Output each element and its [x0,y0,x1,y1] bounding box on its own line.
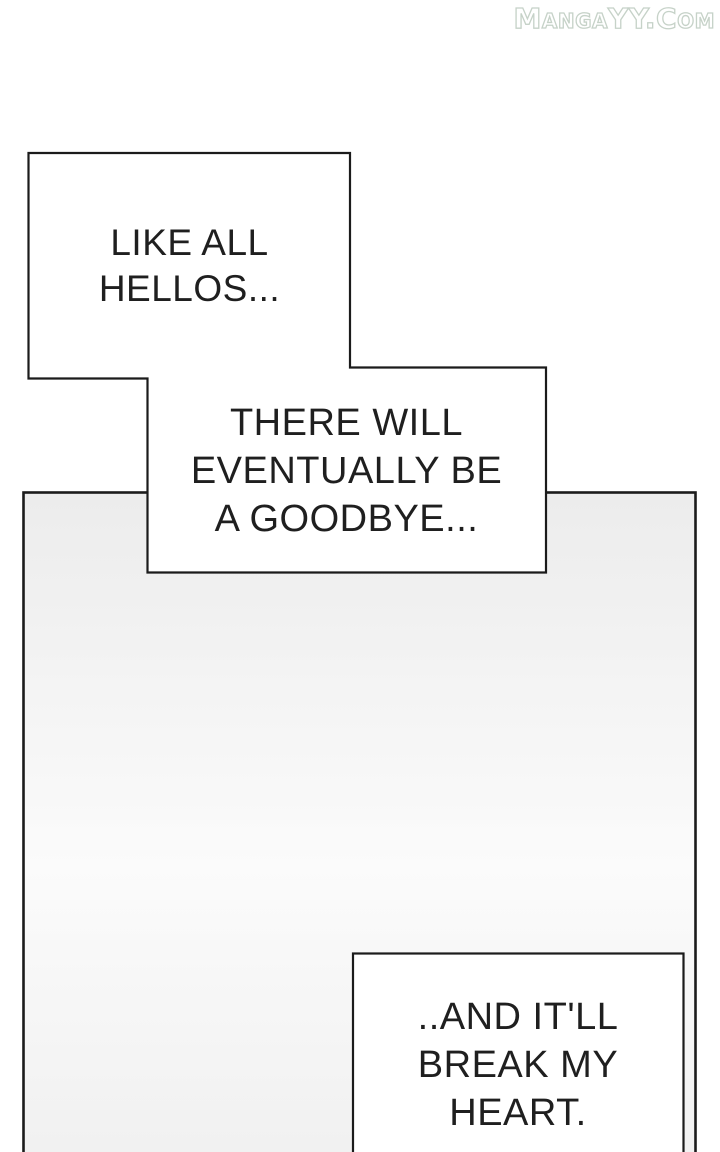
speech-line: BREAK MY [418,1041,618,1089]
speech-line: HEART. [449,1089,586,1137]
mangayy-watermark-logo: MangaYY.Com [514,2,715,35]
speech-line: ..AND IT'LL [418,993,619,1041]
speech-box-3: ..AND IT'LL BREAK MY HEART. [353,955,683,1152]
speech-line: EVENTUALLY BE [191,447,502,495]
speech-line: A GOODBYE... [215,495,479,543]
speech-line: HELLOS... [99,266,280,312]
speech-box-1: LIKE ALL HELLOS... [29,155,350,377]
speech-line: LIKE ALL [110,220,268,266]
manga-page: MangaYY.Com LIKE ALL HELLOS... THERE WIL… [0,0,720,1152]
speech-box-2: THERE WILL EVENTUALLY BE A GOODBYE... [147,370,546,572]
speech-line: THERE WILL [230,399,463,447]
